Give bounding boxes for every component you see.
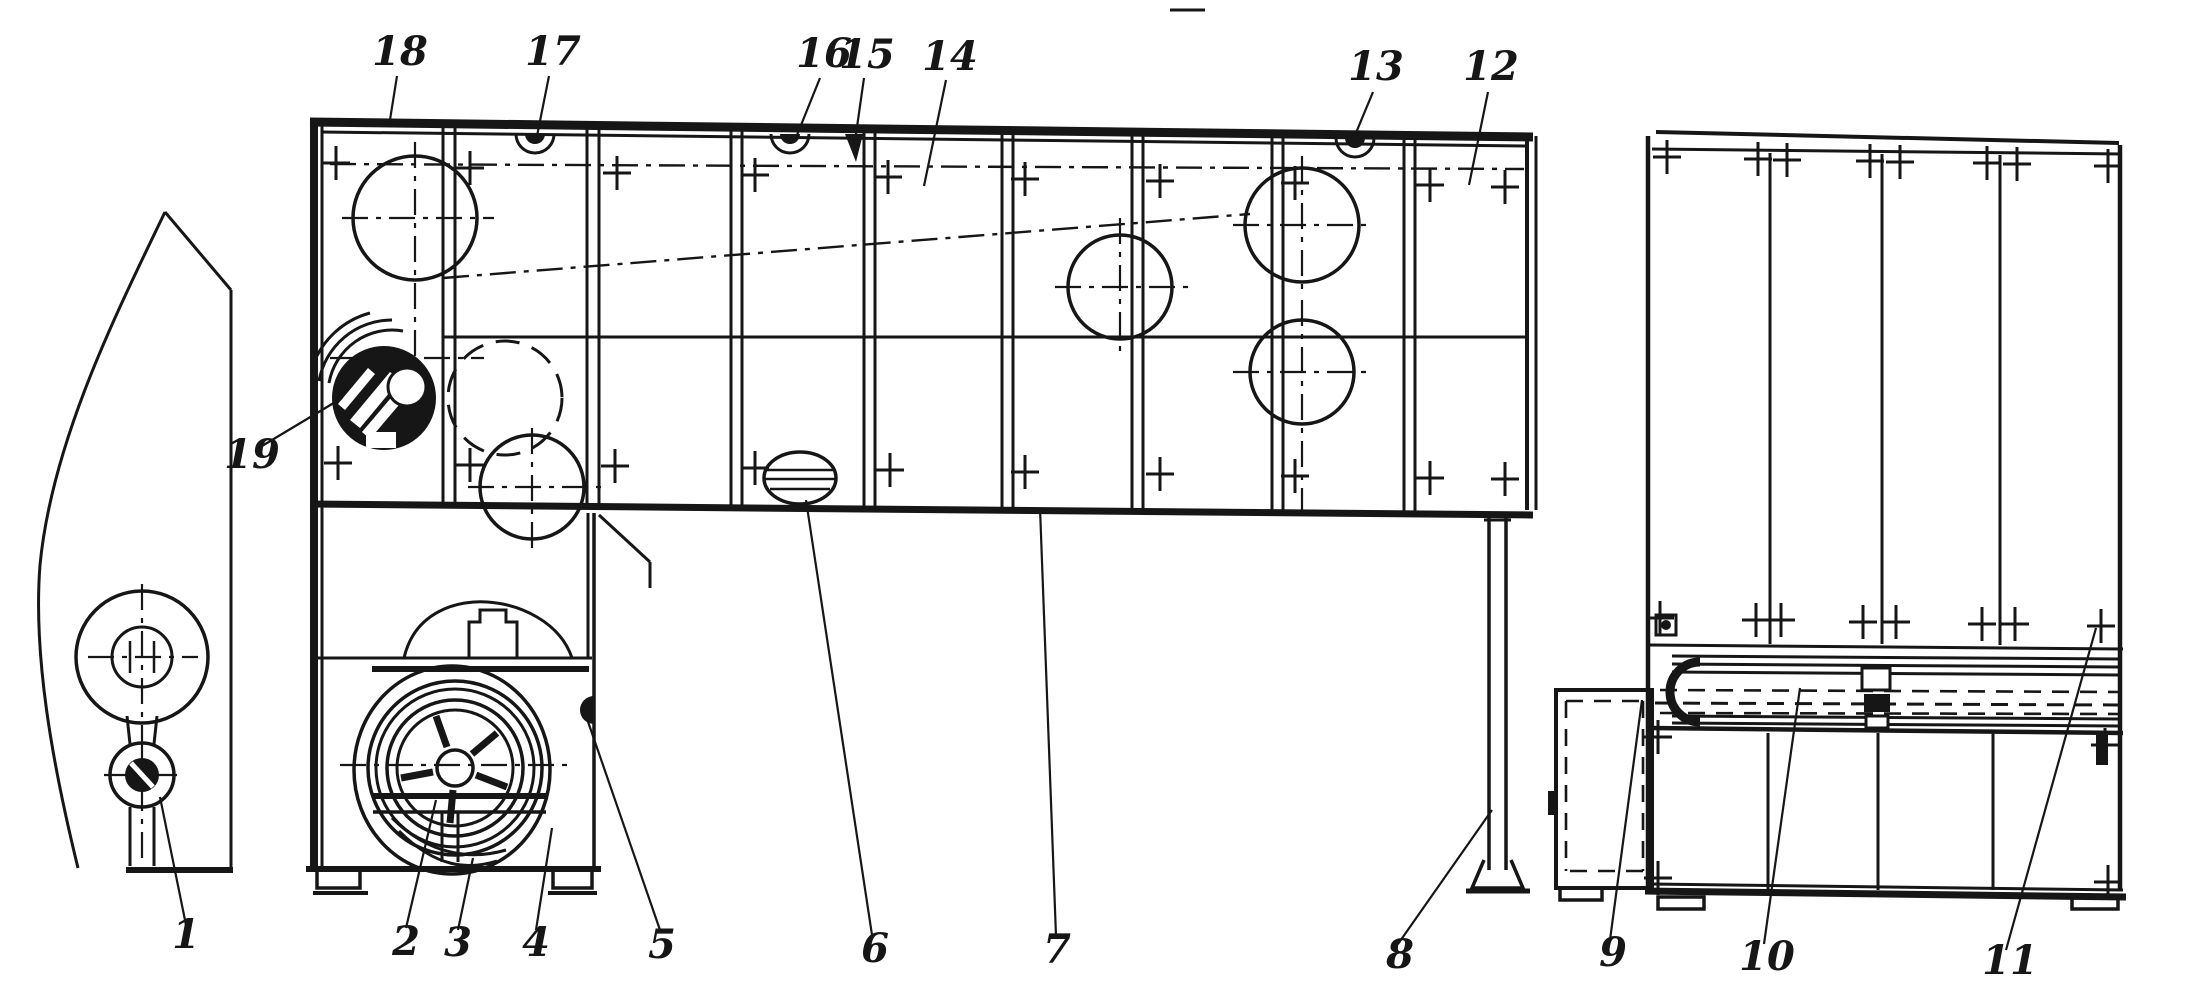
- main-machine-view: [306, 10, 1536, 893]
- callout-label-9: 9: [1599, 929, 1627, 976]
- callout-label-12: 12: [1463, 43, 1519, 90]
- callout-16: 16: [795, 30, 852, 140]
- callout-4: 4: [522, 828, 552, 966]
- left-detail-view: [39, 212, 233, 870]
- callout-label-1: 1: [172, 911, 200, 958]
- machine-elevation-drawing: 12345678910111213141516171819: [0, 0, 2196, 994]
- callout-label-8: 8: [1385, 931, 1414, 978]
- callout-label-13: 13: [1348, 43, 1404, 90]
- callout-label-18: 18: [372, 28, 428, 75]
- callout-12: 12: [1463, 43, 1519, 185]
- callout-label-7: 7: [1043, 926, 1071, 973]
- callout-label-16: 16: [796, 30, 852, 77]
- callout-7: 7: [1040, 508, 1071, 973]
- callout-label-10: 10: [1739, 933, 1795, 980]
- callout-label-19: 19: [224, 431, 280, 478]
- callout-11: 11: [1982, 628, 2096, 984]
- callout-label-6: 6: [861, 925, 889, 972]
- callout-label-11: 11: [1982, 937, 2038, 984]
- callout-8: 8: [1385, 810, 1492, 978]
- callout-label-14: 14: [922, 33, 978, 80]
- callout-19: 19: [224, 398, 342, 478]
- callout-6: 6: [806, 500, 889, 972]
- callout-10: 10: [1739, 688, 1800, 980]
- callout-1: 1: [160, 797, 200, 958]
- callout-label-4: 4: [522, 919, 550, 966]
- callout-13: 13: [1348, 43, 1404, 140]
- callout-label-17: 17: [525, 28, 581, 75]
- callout-label-3: 3: [444, 919, 472, 966]
- callout-18: 18: [372, 28, 428, 126]
- right-machine-view: [1548, 132, 2126, 909]
- technical-drawing-sheet: 12345678910111213141516171819: [0, 0, 2196, 994]
- callout-17: 17: [525, 28, 581, 136]
- callout-5: 5: [585, 713, 676, 968]
- callout-label-2: 2: [391, 918, 420, 965]
- callout-label-5: 5: [648, 921, 676, 968]
- callout-14: 14: [922, 33, 978, 186]
